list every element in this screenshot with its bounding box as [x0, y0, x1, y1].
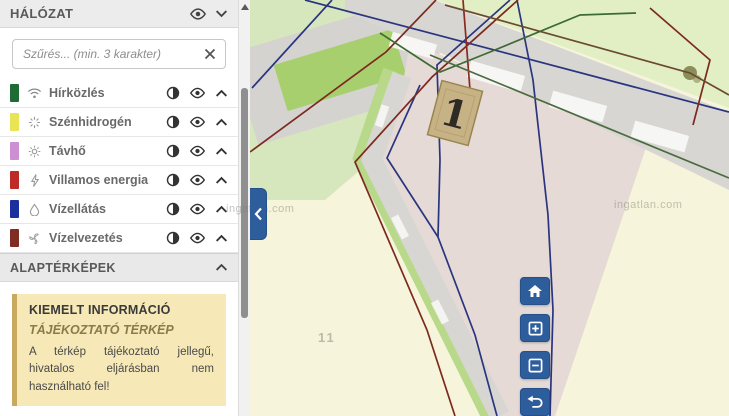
- basemaps-collapse-chevron-up-icon[interactable]: [215, 263, 228, 272]
- layer-label: Villamos energia: [49, 173, 166, 187]
- layer-label: Távhő: [49, 144, 166, 158]
- contrast-toggle-icon[interactable]: [166, 115, 180, 129]
- layer-filter-section: [0, 28, 238, 79]
- layer-color-swatch: [10, 171, 19, 189]
- sun-icon: [26, 145, 43, 158]
- app-root: HÁLÓZAT: [0, 0, 729, 416]
- layer-filter-input[interactable]: [13, 47, 195, 61]
- info-cards-section: KIEMELT INFORMÁCIÓ TÁJÉKOZTATÓ TÉRKÉP A …: [0, 282, 238, 416]
- close-icon: [204, 48, 216, 60]
- layer-expand-chevron-up-icon[interactable]: [215, 176, 228, 185]
- scroll-up-icon[interactable]: [241, 4, 249, 10]
- contrast-toggle-icon[interactable]: [166, 202, 180, 216]
- layer-visibility-eye-icon[interactable]: [189, 203, 206, 215]
- layer-expand-chevron-up-icon[interactable]: [215, 89, 228, 98]
- network-section-title: HÁLÓZAT: [10, 6, 189, 21]
- home-button[interactable]: [520, 277, 550, 305]
- layer-row-szenhidrogen[interactable]: Szénhidrogén: [0, 108, 238, 137]
- layer-visibility-eye-icon[interactable]: [189, 145, 206, 157]
- layer-expand-chevron-up-icon[interactable]: [215, 118, 228, 127]
- layer-expand-chevron-up-icon[interactable]: [215, 205, 228, 214]
- map-canvas[interactable]: 1 11: [250, 0, 729, 416]
- basemap: 1 11: [250, 0, 729, 416]
- layer-label: Vízellátás: [49, 202, 166, 216]
- layer-label: Hírközlés: [49, 86, 166, 100]
- drop-icon: [26, 203, 43, 216]
- layer-expand-chevron-up-icon[interactable]: [215, 147, 228, 156]
- contrast-toggle-icon[interactable]: [166, 231, 180, 245]
- sidebar-collapse-tab[interactable]: [250, 188, 267, 240]
- layer-label: Szénhidrogén: [49, 115, 166, 129]
- home-icon: [527, 284, 543, 298]
- network-section-header[interactable]: HÁLÓZAT: [0, 0, 238, 28]
- zoom-in-button[interactable]: [520, 314, 550, 342]
- info-card-tajekoztato: KIEMELT INFORMÁCIÓ TÁJÉKOZTATÓ TÉRKÉP A …: [12, 294, 226, 406]
- basemaps-section-header[interactable]: ALAPTÉRKÉPEK: [0, 253, 238, 282]
- layers-sidebar: HÁLÓZAT: [0, 0, 238, 416]
- layer-expand-chevron-up-icon[interactable]: [215, 234, 228, 243]
- layer-color-swatch: [10, 113, 19, 131]
- network-collapse-chevron-down-icon[interactable]: [215, 9, 228, 18]
- layer-visibility-eye-icon[interactable]: [189, 232, 206, 244]
- filter-clear-button[interactable]: [195, 41, 225, 67]
- layer-visibility-eye-icon[interactable]: [189, 87, 206, 99]
- contrast-toggle-icon[interactable]: [166, 86, 180, 100]
- parcel-number-label: 11: [318, 330, 336, 345]
- info-card-subtitle: TÁJÉKOZTATÓ TÉRKÉP: [29, 323, 214, 337]
- layer-row-vizelvezetes[interactable]: Vízelvezetés: [0, 224, 238, 253]
- layer-filter: [12, 39, 226, 69]
- contrast-toggle-icon[interactable]: [166, 173, 180, 187]
- map-controls: [520, 277, 550, 416]
- previous-extent-button[interactable]: [520, 388, 550, 416]
- sparkle-icon: [26, 116, 43, 129]
- sidebar-scrollbar[interactable]: [238, 0, 250, 416]
- layer-color-swatch: [10, 229, 19, 247]
- wifi-icon: [26, 87, 43, 99]
- layer-color-swatch: [10, 200, 19, 218]
- info-card-title: KIEMELT INFORMÁCIÓ: [29, 303, 214, 317]
- layer-color-swatch: [10, 142, 19, 160]
- fan-icon: [26, 232, 43, 245]
- layer-row-hirkozles[interactable]: Hírközlés: [0, 79, 238, 108]
- chevron-left-icon: [254, 207, 263, 221]
- contrast-toggle-icon[interactable]: [166, 144, 180, 158]
- undo-arrow-icon: [527, 395, 543, 409]
- bolt-icon: [26, 174, 43, 187]
- layer-label: Vízelvezetés: [49, 231, 166, 245]
- layer-visibility-eye-icon[interactable]: [189, 174, 206, 186]
- scrollbar-thumb[interactable]: [241, 88, 248, 318]
- network-visibility-eye-icon[interactable]: [189, 8, 207, 20]
- zoom-in-icon: [528, 321, 543, 336]
- layer-row-tavho[interactable]: Távhő: [0, 137, 238, 166]
- layer-color-swatch: [10, 84, 19, 102]
- info-card-body: A térkép tájékoztató jellegű, hivatalos …: [29, 344, 214, 396]
- zoom-out-icon: [528, 358, 543, 373]
- layer-row-villamos-energia[interactable]: Villamos energia: [0, 166, 238, 195]
- layer-row-vizellatas[interactable]: Vízellátás: [0, 195, 238, 224]
- basemaps-section-title: ALAPTÉRKÉPEK: [10, 261, 215, 275]
- layer-visibility-eye-icon[interactable]: [189, 116, 206, 128]
- zoom-out-button[interactable]: [520, 351, 550, 379]
